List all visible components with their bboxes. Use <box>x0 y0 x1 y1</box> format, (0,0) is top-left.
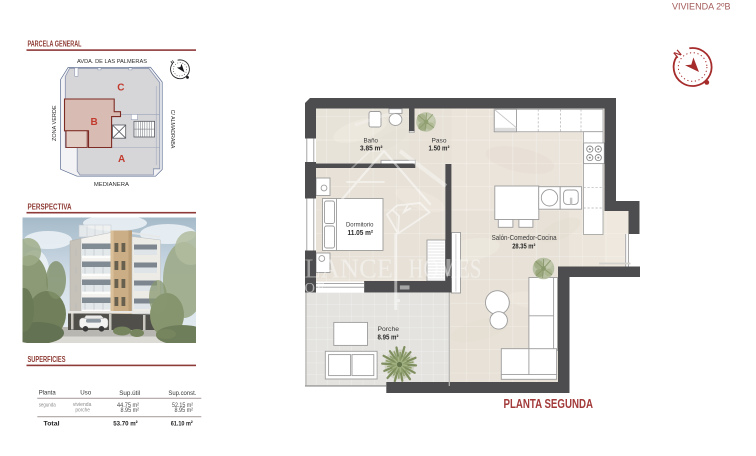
svg-text:C/ ALMADRABA: C/ ALMADRABA <box>169 110 175 149</box>
svg-text:61.10 m²: 61.10 m² <box>171 421 194 428</box>
svg-text:LANCE: LANCE <box>305 254 394 284</box>
svg-text:28.35 m²: 28.35 m² <box>512 242 536 251</box>
svg-text:Paso: Paso <box>432 138 447 145</box>
svg-text:segunda: segunda <box>39 403 57 409</box>
svg-text:Porche: Porche <box>378 326 400 333</box>
svg-text:SUPERFICIES: SUPERFICIES <box>28 354 66 364</box>
svg-text:A: A <box>118 154 125 165</box>
svg-text:Total: Total <box>44 420 60 427</box>
svg-text:Planta: Planta <box>39 389 56 396</box>
svg-text:MEDIANERA: MEDIANERA <box>94 182 129 188</box>
svg-text:C: C <box>117 83 124 94</box>
svg-text:Sup.const.: Sup.const. <box>168 390 196 397</box>
svg-text:PARCELA GENERAL: PARCELA GENERAL <box>28 38 82 48</box>
svg-text:AVDA. DE LAS PALMERAS: AVDA. DE LAS PALMERAS <box>77 59 147 65</box>
svg-text:Salón-Comedor-Cocina: Salón-Comedor-Cocina <box>492 233 557 242</box>
svg-text:53.70 m²: 53.70 m² <box>113 421 138 428</box>
svg-text:porche: porche <box>75 408 90 414</box>
svg-text:N: N <box>170 59 176 65</box>
svg-text:ZONA VERDE: ZONA VERDE <box>52 105 58 141</box>
svg-text:8.95 m²: 8.95 m² <box>121 407 140 414</box>
svg-text:8.95 m²: 8.95 m² <box>378 334 400 341</box>
svg-text:PERSPECTIVA: PERSPECTIVA <box>28 202 72 212</box>
svg-text:8.95 m²: 8.95 m² <box>175 407 194 414</box>
svg-text:HOMES: HOMES <box>409 254 482 284</box>
svg-text:PLANTA SEGUNDA: PLANTA SEGUNDA <box>504 397 594 411</box>
svg-text:Sup.útil: Sup.útil <box>119 390 140 397</box>
svg-text:1.50 m²: 1.50 m² <box>429 146 451 153</box>
svg-text:Baño: Baño <box>364 138 379 145</box>
svg-text:VIVIENDA 2ºB: VIVIENDA 2ºB <box>672 2 731 12</box>
svg-text:Uso: Uso <box>80 389 91 396</box>
svg-text:OF: OF <box>305 280 327 296</box>
svg-text:B: B <box>91 117 98 128</box>
svg-text:11.05 m²: 11.05 m² <box>348 228 374 237</box>
svg-text:N: N <box>672 48 684 61</box>
